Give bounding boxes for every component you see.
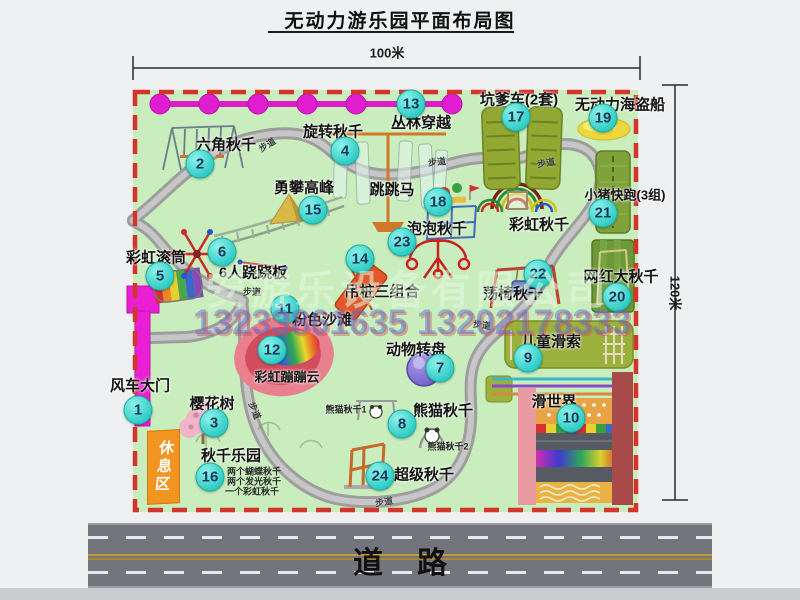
width-dimension-label: 100米 [370, 43, 405, 62]
poi-badge-15: 15 [299, 196, 328, 225]
poi-label-bounce-cloud: 彩虹蹦蹦云 [254, 367, 319, 386]
poi-badge-1: 1 [124, 396, 153, 425]
poi-label-windmill-gate: 风车大门 [110, 375, 170, 396]
poi-badge-23: 23 [388, 228, 417, 257]
title-underline [268, 31, 514, 33]
rest-area-box: 休息区 [147, 429, 180, 505]
poi-badge-2: 2 [186, 150, 215, 179]
poi-badge-18: 18 [424, 188, 453, 217]
poi-badge-9: 9 [514, 344, 543, 373]
poi-badge-13: 13 [397, 90, 426, 119]
poi-badge-4: 4 [331, 137, 360, 166]
walkway-label: 步道 [427, 154, 446, 169]
poi-label-climbing-peak: 勇攀高峰 [274, 177, 334, 198]
poi-label-super-swing: 超级秋千 [394, 464, 454, 485]
poi-badge-5: 5 [146, 262, 175, 291]
road: 道路 [88, 523, 712, 588]
park-layout-map: 无动力游乐园平面布局图 [0, 0, 800, 600]
poi-sublabel-panda-swing-2: 熊猫秋千2 [427, 440, 468, 453]
poi-badge-24: 24 [366, 462, 395, 491]
poi-badge-3: 3 [200, 409, 229, 438]
poi-label-pirate-ship: 无动力海盗船 [575, 94, 665, 115]
poi-label-panda-swing: 熊猫秋千 [413, 400, 473, 421]
poi-label-rainbow-swing: 彩虹秋千 [509, 214, 569, 235]
poi-note-swing-paradise-3: 一个彩虹秋千 [225, 485, 279, 498]
poi-badge-17: 17 [502, 103, 531, 132]
height-dimension-label: 120米 [667, 276, 686, 311]
poi-label-bubble-swing: 泡泡秋千 [407, 218, 467, 239]
road-label: 道路 [88, 538, 712, 582]
watermark-phone: 13233861635 13202178333 [193, 303, 631, 343]
page-title: 无动力游乐园平面布局图 [0, 6, 800, 33]
poi-label-jungle-crossing: 丛林穿越 [391, 112, 451, 133]
poi-badge-16: 16 [196, 463, 225, 492]
poi-label-jumping-horse: 跳跳马 [369, 179, 414, 200]
poi-sublabel-panda-swing-1: 熊猫秋千1 [325, 403, 366, 416]
poi-badge-7: 7 [426, 354, 455, 383]
rest-area-label: 休息区 [150, 440, 177, 494]
poi-badge-10: 10 [557, 404, 586, 433]
poi-badge-8: 8 [388, 410, 417, 439]
poi-badge-19: 19 [589, 104, 618, 133]
poi-label-rotating-swing: 旋转秋千 [303, 121, 363, 142]
poi-badge-21: 21 [589, 199, 618, 228]
